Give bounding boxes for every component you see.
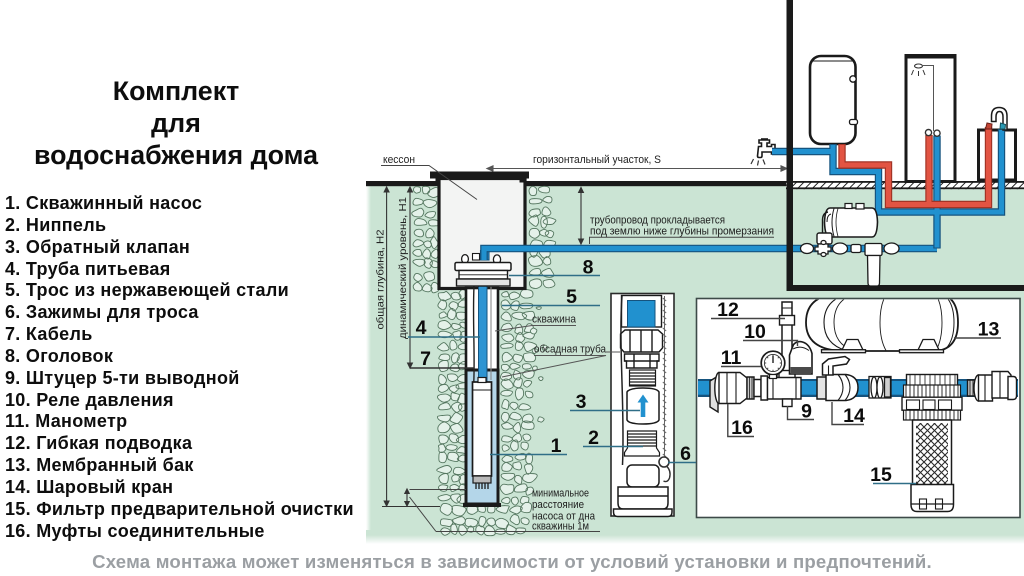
svg-text:горизонтальный участок, S: горизонтальный участок, S [533,154,661,166]
svg-text:12: 12 [717,299,739,321]
svg-text:общая глубина, Н2: общая глубина, Н2 [375,229,387,329]
svg-text:2: 2 [588,427,599,449]
svg-text:минимальное: минимальное [532,488,589,500]
svg-text:скважины 1м: скважины 1м [532,521,589,533]
svg-text:3: 3 [576,391,587,413]
svg-text:13: 13 [978,319,1000,341]
svg-text:1: 1 [551,435,562,457]
svg-text:обсадная труба: обсадная труба [534,344,607,356]
svg-text:14: 14 [843,405,865,427]
svg-text:5: 5 [566,286,577,308]
svg-text:расстояние: расстояние [532,499,584,511]
svg-text:4: 4 [416,317,427,339]
svg-text:9: 9 [801,401,812,423]
svg-text:10: 10 [744,321,766,343]
svg-text:динамический уровень, Н1: динамический уровень, Н1 [397,197,409,339]
svg-text:8: 8 [583,257,594,279]
svg-text:6: 6 [680,443,691,465]
svg-text:под землю ниже глубины промерз: под землю ниже глубины промерзания [590,226,774,238]
svg-text:кессон: кессон [383,154,415,166]
svg-text:11: 11 [721,347,742,369]
svg-text:16: 16 [731,417,753,439]
svg-text:7: 7 [420,348,431,370]
svg-text:скважина: скважина [532,314,577,326]
svg-text:15: 15 [870,464,892,486]
